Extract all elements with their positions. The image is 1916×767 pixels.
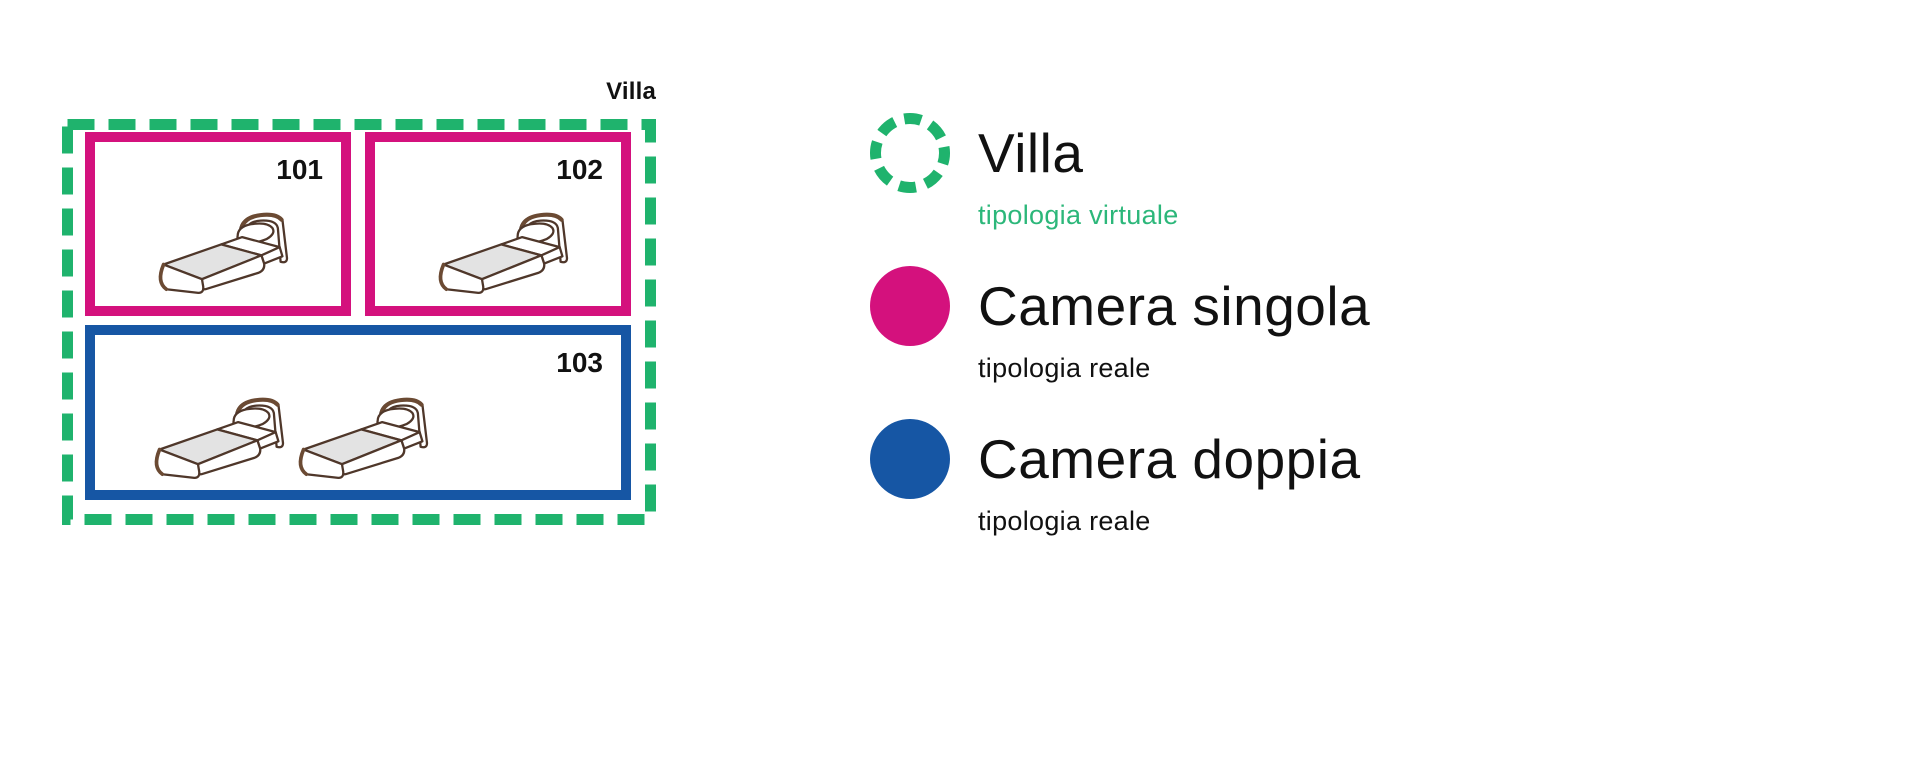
villa-container-label: Villa — [62, 78, 656, 106]
room-number: 103 — [556, 347, 603, 379]
room-103: 103 — [85, 325, 631, 500]
single-bed-icon — [285, 391, 441, 487]
legend-item-villa: Villa tipologia virtuale — [868, 111, 1508, 231]
legend-sublabel: tipologia reale — [978, 353, 1370, 384]
single-bed-icon — [425, 206, 581, 302]
room-number: 101 — [276, 154, 323, 186]
villa-diagram: Villa 101 102 103 — [0, 0, 760, 600]
legend-sublabel: tipologia reale — [978, 506, 1361, 537]
room-number: 102 — [556, 154, 603, 186]
legend-sublabel: tipologia virtuale — [978, 200, 1179, 231]
solid-circle-icon — [868, 264, 952, 348]
legend-label: Camera doppia — [978, 417, 1361, 501]
legend: Villa tipologia virtuale Camera singola … — [868, 111, 1508, 570]
dashed-circle-icon — [868, 111, 952, 195]
room-102: 102 — [365, 132, 631, 316]
single-bed-icon — [141, 391, 297, 487]
solid-circle-icon — [868, 417, 952, 501]
legend-item-camera-doppia: Camera doppia tipologia reale — [868, 417, 1508, 537]
legend-label: Villa — [978, 111, 1179, 195]
legend-label: Camera singola — [978, 264, 1370, 348]
legend-item-camera-singola: Camera singola tipologia reale — [868, 264, 1508, 384]
single-bed-icon — [145, 206, 301, 302]
screen: Villa 101 102 103 — [0, 0, 1916, 767]
room-101: 101 — [85, 132, 351, 316]
